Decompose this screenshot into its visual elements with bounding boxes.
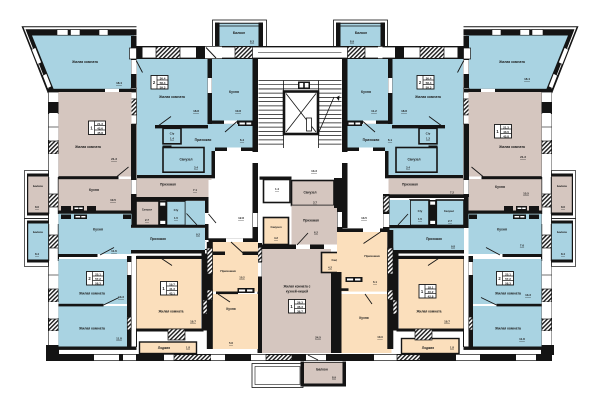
- svg-text:С/у: С/у: [418, 209, 423, 213]
- svg-text:13.3: 13.3: [118, 295, 124, 299]
- svg-text:Прихожая: Прихожая: [160, 183, 176, 187]
- svg-text:11.6: 11.6: [111, 249, 117, 253]
- svg-text:Прихожая: Прихожая: [402, 183, 418, 187]
- svg-text:Балкон: Балкон: [33, 184, 43, 188]
- svg-text:8.4: 8.4: [35, 252, 39, 256]
- svg-text:Жилая комната: Жилая комната: [78, 327, 105, 331]
- svg-text:8.6: 8.6: [561, 205, 565, 209]
- svg-text:36.4: 36.4: [426, 76, 432, 80]
- svg-text:10.8: 10.8: [235, 109, 241, 113]
- svg-text:24.5: 24.5: [315, 336, 321, 340]
- svg-text:Балкон: Балкон: [557, 230, 567, 234]
- svg-text:5.6: 5.6: [229, 341, 233, 345]
- svg-text:6.1: 6.1: [388, 138, 393, 142]
- svg-text:42.8: 42.8: [428, 294, 434, 298]
- svg-text:Санузел: Санузел: [142, 209, 153, 212]
- svg-text:7.1: 7.1: [193, 188, 197, 192]
- svg-text:Кухня: Кухня: [361, 90, 371, 94]
- svg-text:59.3: 59.3: [426, 85, 432, 89]
- svg-text:8.9: 8.9: [332, 376, 336, 380]
- svg-text:8.6: 8.6: [35, 205, 39, 209]
- svg-text:57.2: 57.2: [505, 277, 511, 281]
- svg-text:8.3: 8.3: [250, 40, 255, 44]
- svg-text:С/у: С/у: [170, 132, 175, 136]
- svg-text:Прихожая: Прихожая: [363, 138, 380, 142]
- svg-text:1.3: 1.3: [426, 137, 430, 141]
- svg-text:Санузел: Санузел: [270, 225, 281, 229]
- svg-text:1.5: 1.5: [418, 217, 422, 221]
- svg-text:41.3: 41.3: [169, 287, 175, 291]
- svg-text:1.5: 1.5: [174, 216, 178, 220]
- svg-text:1.8: 1.8: [186, 346, 190, 350]
- svg-text:36.3: 36.3: [297, 305, 303, 309]
- svg-text:18.1: 18.1: [428, 285, 434, 289]
- svg-text:Жилая комната с: Жилая комната с: [283, 285, 311, 289]
- svg-text:25.1: 25.1: [95, 272, 101, 276]
- svg-text:Кухня: Кухня: [359, 316, 368, 320]
- svg-text:4.2: 4.2: [274, 236, 278, 240]
- svg-text:57.2: 57.2: [95, 277, 101, 281]
- svg-text:Прихожая: Прихожая: [195, 138, 212, 142]
- svg-text:3.4: 3.4: [406, 166, 410, 170]
- svg-text:13.3: 13.3: [525, 293, 531, 297]
- svg-text:9.8: 9.8: [451, 245, 455, 249]
- svg-text:6.1: 6.1: [373, 280, 377, 284]
- svg-text:С/у: С/у: [174, 208, 179, 212]
- svg-text:3.7: 3.7: [313, 201, 317, 205]
- svg-text:Прихожая: Прихожая: [426, 237, 442, 241]
- svg-text:Балкон: Балкон: [316, 368, 328, 372]
- svg-text:1.4: 1.4: [275, 187, 279, 191]
- svg-text:Жилая комната: Жилая комната: [498, 60, 525, 64]
- svg-text:Прихожая: Прихожая: [220, 269, 235, 273]
- svg-text:Жилая комната: Жилая комната: [71, 60, 98, 64]
- svg-text:58.3: 58.3: [505, 281, 511, 285]
- svg-text:2.7: 2.7: [145, 218, 149, 222]
- svg-text:7.2: 7.2: [450, 191, 454, 195]
- svg-text:Жилая комната: Жилая комната: [78, 292, 105, 296]
- svg-text:45.8: 45.8: [503, 134, 509, 138]
- svg-text:18.8: 18.8: [401, 109, 407, 113]
- svg-text:Жилая комната: Жилая комната: [414, 95, 441, 99]
- svg-text:26.3: 26.3: [297, 300, 303, 304]
- svg-text:58.4: 58.4: [160, 81, 166, 85]
- svg-text:Санузел: Санузел: [407, 158, 420, 162]
- svg-text:18.4: 18.4: [524, 77, 530, 81]
- svg-text:21.3: 21.3: [503, 125, 509, 129]
- svg-text:Балкон: Балкон: [33, 230, 43, 234]
- svg-text:Жилая комната: Жилая комната: [74, 145, 101, 149]
- svg-text:Жилая комната: Жилая комната: [415, 310, 441, 314]
- svg-text:Кухня: Кухня: [495, 185, 505, 189]
- svg-text:43.6: 43.6: [97, 126, 103, 130]
- svg-text:Лоджия: Лоджия: [422, 346, 434, 350]
- svg-text:10.3: 10.3: [377, 335, 383, 339]
- svg-text:1.4: 1.4: [170, 137, 174, 141]
- svg-text:40.2: 40.2: [428, 290, 434, 294]
- svg-text:Балкон: Балкон: [233, 31, 245, 35]
- svg-text:Лоджия: Лоджия: [158, 346, 170, 350]
- svg-text:кухней-нишей: кухней-нишей: [286, 290, 308, 294]
- svg-text:Жилая комната: Жилая комната: [494, 327, 521, 331]
- svg-text:4.2: 4.2: [328, 266, 332, 270]
- svg-text:21.3: 21.3: [97, 122, 103, 126]
- svg-text:11.2: 11.2: [371, 109, 377, 113]
- svg-text:36.7: 36.7: [297, 309, 303, 313]
- svg-text:36.4: 36.4: [160, 76, 166, 80]
- svg-text:3.4: 3.4: [194, 166, 198, 170]
- svg-text:Кухня: Кухня: [497, 228, 507, 232]
- svg-text:11.8: 11.8: [519, 337, 525, 341]
- svg-text:13.3: 13.3: [311, 169, 317, 173]
- svg-text:Балкон: Балкон: [355, 31, 367, 35]
- svg-text:19.7: 19.7: [169, 282, 175, 286]
- svg-text:Прихожая: Прихожая: [303, 219, 319, 223]
- svg-text:19.7: 19.7: [190, 320, 196, 324]
- svg-text:2.7: 2.7: [448, 219, 452, 223]
- svg-text:Прихожая: Прихожая: [150, 237, 166, 241]
- svg-text:43.6: 43.6: [503, 130, 509, 134]
- svg-text:Кухня: Кухня: [226, 307, 235, 311]
- svg-text:Жилая комната: Жилая комната: [158, 95, 185, 99]
- svg-text:18.4: 18.4: [116, 81, 122, 85]
- svg-text:Санузел: Санузел: [179, 158, 192, 162]
- svg-text:Прихожая: Прихожая: [364, 254, 379, 258]
- svg-text:58.4: 58.4: [426, 81, 432, 85]
- svg-text:Жилая комната: Жилая комната: [498, 145, 525, 149]
- svg-text:Санузел: Санузел: [444, 210, 455, 213]
- svg-text:58.3: 58.3: [95, 281, 101, 285]
- svg-text:21.3: 21.3: [520, 155, 526, 159]
- svg-text:6.2: 6.2: [314, 231, 318, 235]
- svg-text:1.8: 1.8: [450, 346, 454, 350]
- svg-text:21.3: 21.3: [111, 157, 117, 161]
- svg-text:10.5: 10.5: [110, 198, 116, 202]
- svg-text:6.4: 6.4: [240, 138, 245, 142]
- svg-text:10.5: 10.5: [523, 192, 529, 196]
- svg-text:10.2: 10.2: [239, 276, 245, 280]
- svg-text:12.8: 12.8: [238, 216, 244, 220]
- svg-text:Кухня: Кухня: [89, 188, 99, 192]
- svg-text:45.8: 45.8: [97, 131, 103, 135]
- svg-text:С/у: С/у: [426, 132, 431, 136]
- svg-text:19.7: 19.7: [444, 320, 450, 324]
- svg-text:Балкон: Балкон: [557, 184, 567, 188]
- svg-text:8.9: 8.9: [350, 40, 355, 44]
- svg-text:13.5: 13.5: [361, 216, 367, 220]
- svg-text:Кухня: Кухня: [229, 90, 239, 94]
- svg-text:Жилая комната: Жилая комната: [494, 292, 521, 296]
- svg-text:Санузел: Санузел: [303, 191, 316, 195]
- svg-text:8.4: 8.4: [561, 252, 565, 256]
- svg-text:Жилая комната: Жилая комната: [157, 310, 183, 314]
- svg-text:7.6: 7.6: [520, 244, 525, 248]
- svg-text:9.2: 9.2: [196, 233, 200, 237]
- svg-text:43.1: 43.1: [169, 291, 175, 295]
- svg-text:18.8: 18.8: [193, 109, 199, 113]
- svg-text:11.8: 11.8: [116, 337, 122, 341]
- svg-text:25.1: 25.1: [505, 272, 511, 276]
- svg-text:59.3: 59.3: [160, 85, 166, 89]
- svg-text:Кухня: Кухня: [93, 228, 103, 232]
